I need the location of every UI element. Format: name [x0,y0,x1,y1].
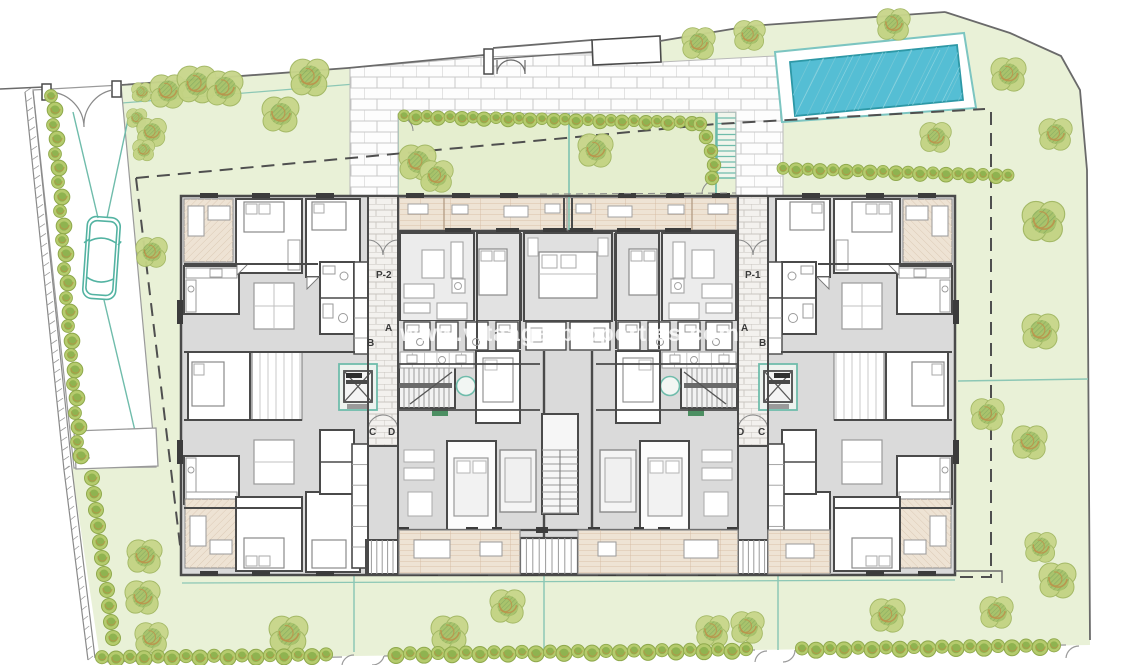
svg-text:D: D [737,427,744,438]
svg-text:P-2: P-2 [376,270,392,281]
svg-text:B: B [367,338,374,349]
svg-text:P-1: P-1 [745,270,761,281]
svg-text:B: B [759,338,766,349]
svg-text:www.vitaagarproperties.com: www.vitaagarproperties.com [399,320,740,346]
svg-text:D: D [388,427,395,438]
svg-text:A: A [385,323,392,334]
svg-text:C: C [369,427,376,438]
svg-text:A: A [741,323,748,334]
svg-text:C: C [758,427,765,438]
